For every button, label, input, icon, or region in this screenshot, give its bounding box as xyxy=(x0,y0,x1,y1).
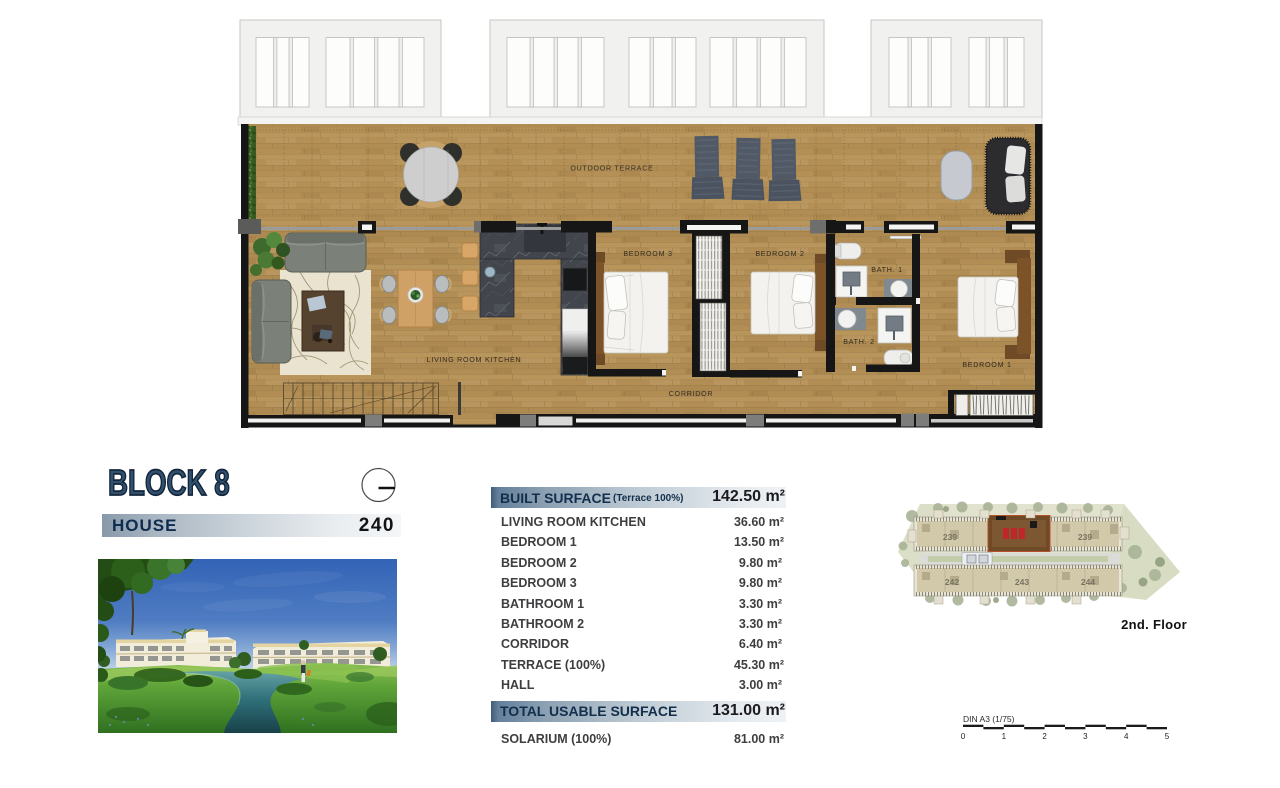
svg-text:243: 243 xyxy=(1015,577,1029,587)
svg-text:CORRIDOR: CORRIDOR xyxy=(669,390,714,398)
svg-text:2nd. Floor: 2nd. Floor xyxy=(1121,617,1187,632)
svg-text:LIVING ROOM KITCHEN: LIVING ROOM KITCHEN xyxy=(427,356,522,364)
svg-text:2: 2 xyxy=(1042,732,1047,741)
svg-text:DIN A3 (1/75): DIN A3 (1/75) xyxy=(963,714,1015,724)
svg-text:1: 1 xyxy=(1002,732,1007,741)
svg-text:BEDROOM 1: BEDROOM 1 xyxy=(962,361,1011,369)
svg-text:242: 242 xyxy=(945,577,959,587)
svg-text:5: 5 xyxy=(1165,732,1170,741)
svg-text:244: 244 xyxy=(1081,577,1095,587)
svg-text:BATH. 2: BATH. 2 xyxy=(843,338,875,346)
svg-text:BEDROOM 3: BEDROOM 3 xyxy=(623,250,672,258)
svg-text:4: 4 xyxy=(1124,732,1129,741)
svg-text:OUTDOOR TERRACE: OUTDOOR TERRACE xyxy=(570,165,653,173)
svg-text:3: 3 xyxy=(1083,732,1088,741)
svg-text:239: 239 xyxy=(943,532,957,542)
svg-text:239: 239 xyxy=(1078,532,1092,542)
svg-text:BEDROOM 2: BEDROOM 2 xyxy=(755,250,804,258)
svg-text:0: 0 xyxy=(961,732,966,741)
svg-text:BATH. 1: BATH. 1 xyxy=(871,266,903,274)
